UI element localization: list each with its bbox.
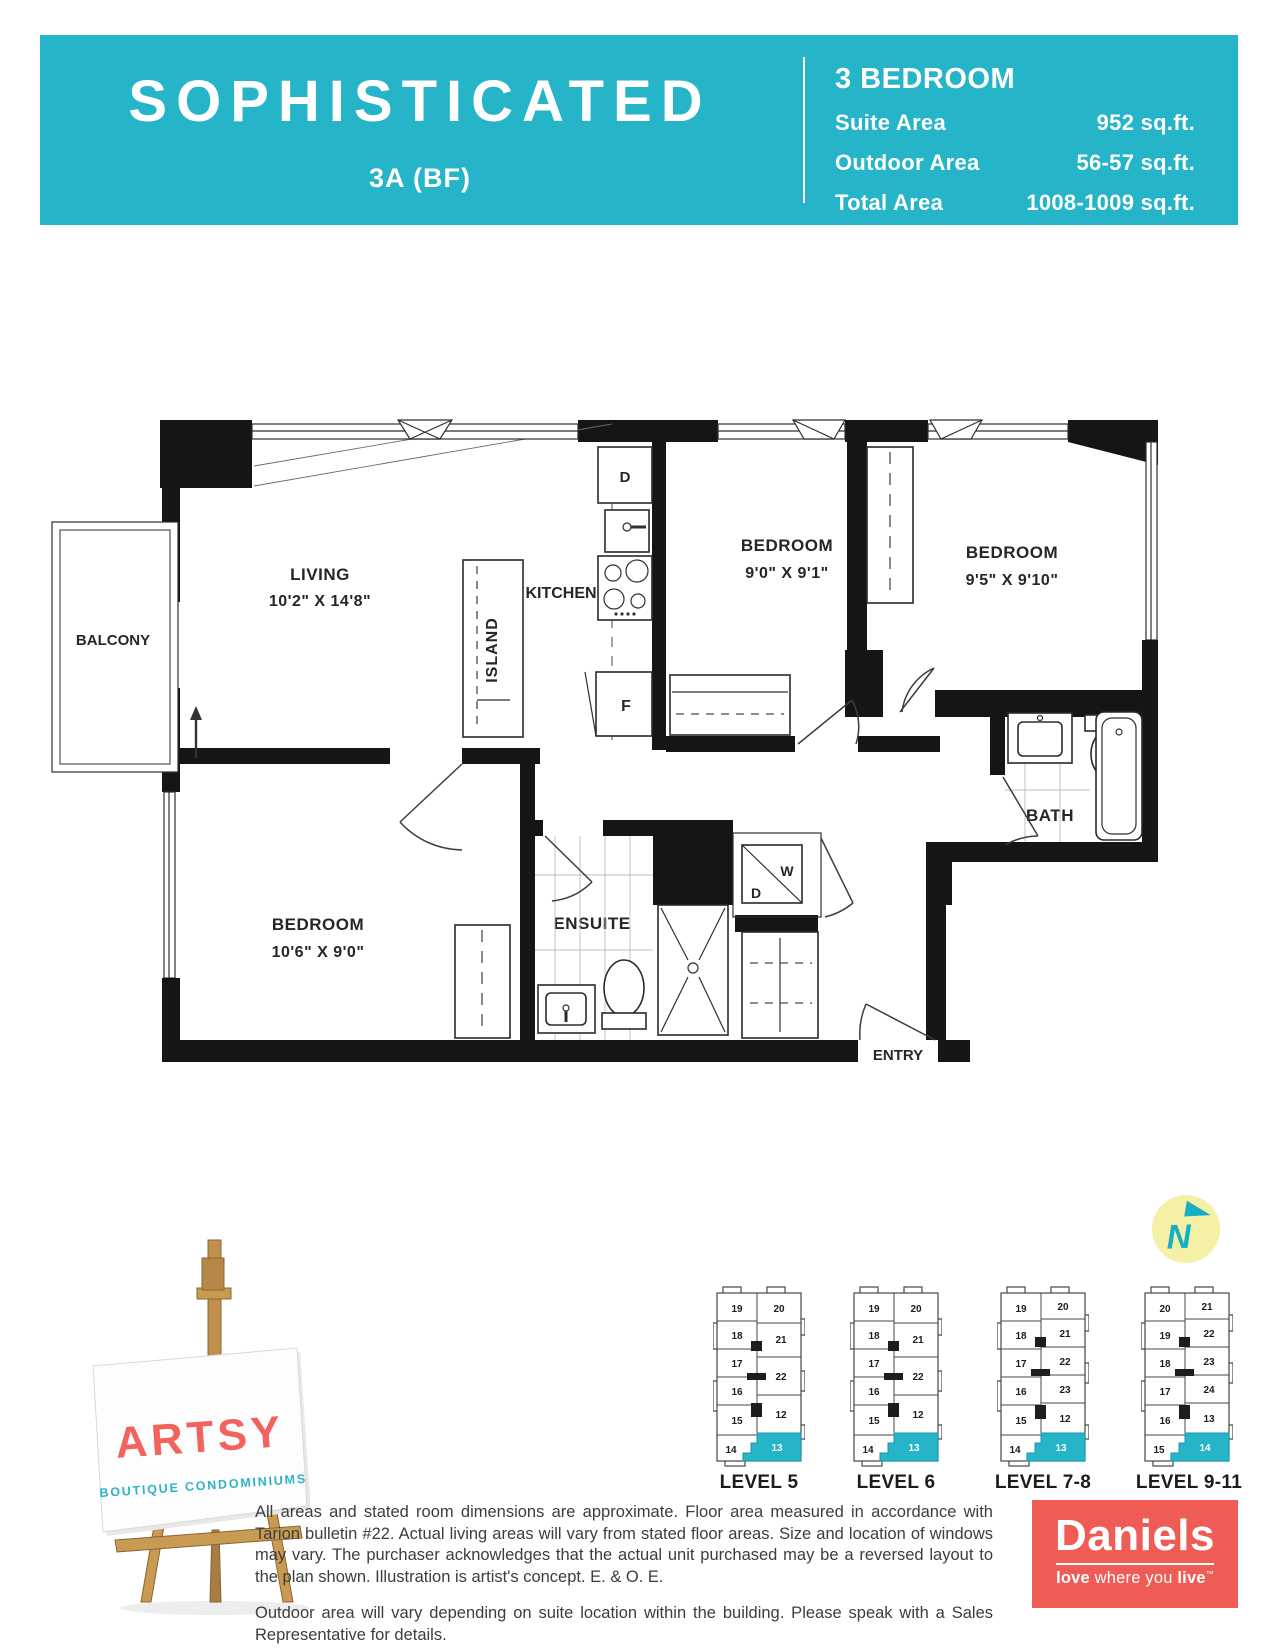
disclaimer-p1: All areas and stated room dimensions are… [255,1502,993,1588]
keyplan-level-5: 19 18 17 16 15 14 20 21 22 12 13 [713,1285,805,1467]
daniels-divider [1056,1563,1214,1565]
keyplan-label: LEVEL 6 [826,1472,966,1494]
bedroom2-closet [867,447,913,603]
svg-text:21: 21 [775,1335,787,1346]
tagline-live: live [1177,1569,1205,1587]
svg-text:13: 13 [771,1443,783,1454]
svg-text:22: 22 [1203,1329,1215,1340]
svg-text:20: 20 [1159,1304,1171,1315]
entry-label: ENTRY [873,1047,923,1064]
svg-text:16: 16 [1015,1387,1027,1398]
daniels-logo: Daniels love where you live™ [1032,1500,1238,1608]
keyplan-label: LEVEL 5 [689,1472,829,1494]
dishwasher-label: D [620,469,631,486]
bedroom1-dims: 9'0" X 9'1" [745,565,828,582]
svg-text:23: 23 [1059,1385,1071,1396]
svg-text:14: 14 [862,1445,874,1456]
living-label: LIVING [290,565,350,584]
svg-text:13: 13 [908,1443,920,1454]
svg-text:22: 22 [1059,1357,1071,1368]
svg-text:12: 12 [775,1410,787,1421]
svg-text:18: 18 [868,1331,880,1342]
svg-text:19: 19 [1015,1304,1027,1315]
svg-text:20: 20 [1057,1302,1069,1313]
svg-text:24: 24 [1203,1385,1215,1396]
compass-icon: N [1150,1193,1222,1265]
living-dims: 10'2" X 14'8" [269,593,371,610]
svg-text:20: 20 [773,1304,785,1315]
floorplan-sheet: SOPHISTICATED 3A (BF) 3 BEDROOM Suite Ar… [0,0,1275,1650]
svg-text:18: 18 [1015,1331,1027,1342]
svg-text:15: 15 [1015,1416,1027,1427]
svg-text:18: 18 [1159,1359,1171,1370]
svg-text:15: 15 [731,1416,743,1427]
disclaimer: All areas and stated room dimensions are… [255,1502,993,1650]
svg-text:23: 23 [1203,1357,1215,1368]
bedroom1-closet [670,675,790,735]
bedroom2-dims: 9'5" X 9'10" [966,572,1059,589]
island-label: ISLAND [484,617,501,683]
washer-label: W [780,863,794,879]
svg-text:12: 12 [912,1410,924,1421]
bedroom1-label: BEDROOM [741,536,833,555]
kitchen-area: D F KITCHEN ISLAND [463,447,652,740]
svg-text:20: 20 [910,1304,922,1315]
svg-text:18: 18 [731,1331,743,1342]
svg-text:13: 13 [1203,1414,1215,1425]
svg-text:17: 17 [1015,1359,1027,1370]
laundry-closet: W D [733,833,853,917]
svg-text:13: 13 [1055,1443,1067,1454]
svg-text:19: 19 [1159,1331,1171,1342]
keyplan-label: LEVEL 7-8 [973,1472,1113,1494]
hall-closet [742,932,818,1038]
svg-text:16: 16 [868,1387,880,1398]
svg-text:21: 21 [1201,1302,1213,1313]
svg-text:14: 14 [1009,1445,1021,1456]
bath-label: BATH [1026,806,1074,825]
bedroom3-closet [455,925,510,1038]
keyplan-level-9-11: 20 19 18 17 16 15 21 22 23 24 13 14 [1141,1285,1233,1467]
daniels-name: Daniels [1032,1514,1238,1558]
tagline-tm: ™ [1206,1570,1214,1579]
svg-text:17: 17 [1159,1387,1171,1398]
tagline-love: love [1056,1569,1090,1587]
daniels-tagline: love where you live™ [1032,1569,1238,1588]
bedroom3-label: BEDROOM [272,915,364,934]
disclaimer-p2: Outdoor area will vary depending on suit… [255,1603,993,1646]
dryer-label: D [751,885,761,901]
svg-text:17: 17 [868,1359,880,1370]
svg-text:12: 12 [1059,1414,1071,1425]
svg-text:21: 21 [1059,1329,1071,1340]
floorplan-drawing: BALCONY D F KITCHEN ISLAND [0,0,1275,1120]
svg-text:19: 19 [868,1304,880,1315]
bedroom2-label: BEDROOM [966,543,1058,562]
balcony-label: BALCONY [76,632,150,649]
svg-text:17: 17 [731,1359,743,1370]
svg-text:15: 15 [1153,1445,1165,1456]
keyplan-level-7-8: 19 18 17 16 15 14 20 21 22 23 12 13 [997,1285,1089,1467]
fridge-label: F [621,698,631,715]
ensuite-label: ENSUITE [553,914,630,933]
svg-text:21: 21 [912,1335,924,1346]
svg-text:16: 16 [731,1387,743,1398]
bedroom3-dims: 10'6" X 9'0" [272,944,365,961]
tagline-mid: where you [1090,1569,1178,1587]
compass-n: N [1166,1218,1193,1257]
svg-text:22: 22 [912,1372,924,1383]
svg-text:15: 15 [868,1416,880,1427]
keyplan-label: LEVEL 9-11 [1119,1472,1259,1494]
svg-text:14: 14 [725,1445,737,1456]
keyplan-level-6: 19 18 17 16 15 14 20 21 22 12 13 [850,1285,942,1467]
svg-text:22: 22 [775,1372,787,1383]
svg-text:16: 16 [1159,1416,1171,1427]
balcony: BALCONY [52,522,178,772]
kitchen-label: KITCHEN [525,585,596,602]
svg-text:19: 19 [731,1304,743,1315]
svg-text:14: 14 [1199,1443,1211,1454]
